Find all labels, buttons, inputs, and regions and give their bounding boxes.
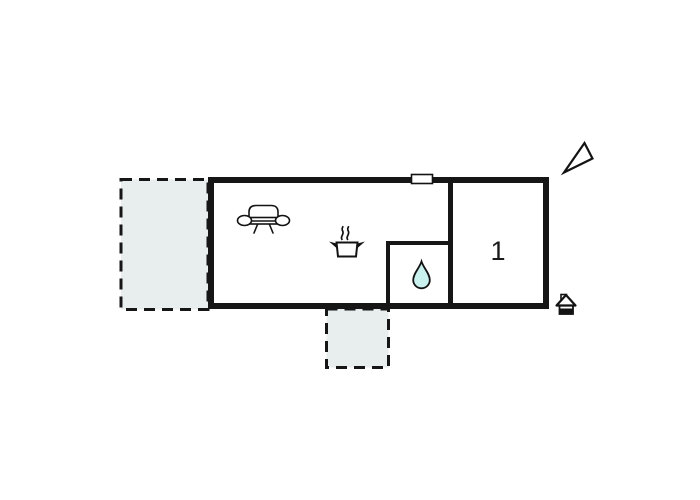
window-marker (412, 175, 433, 184)
terrace-bottom-area (327, 309, 389, 368)
north-arrow-icon (564, 143, 593, 173)
entrance-house-icon (557, 295, 576, 315)
terrace-left-area (121, 180, 208, 310)
room-label: 1 (490, 236, 505, 266)
floor-plan: 1 (0, 0, 700, 500)
